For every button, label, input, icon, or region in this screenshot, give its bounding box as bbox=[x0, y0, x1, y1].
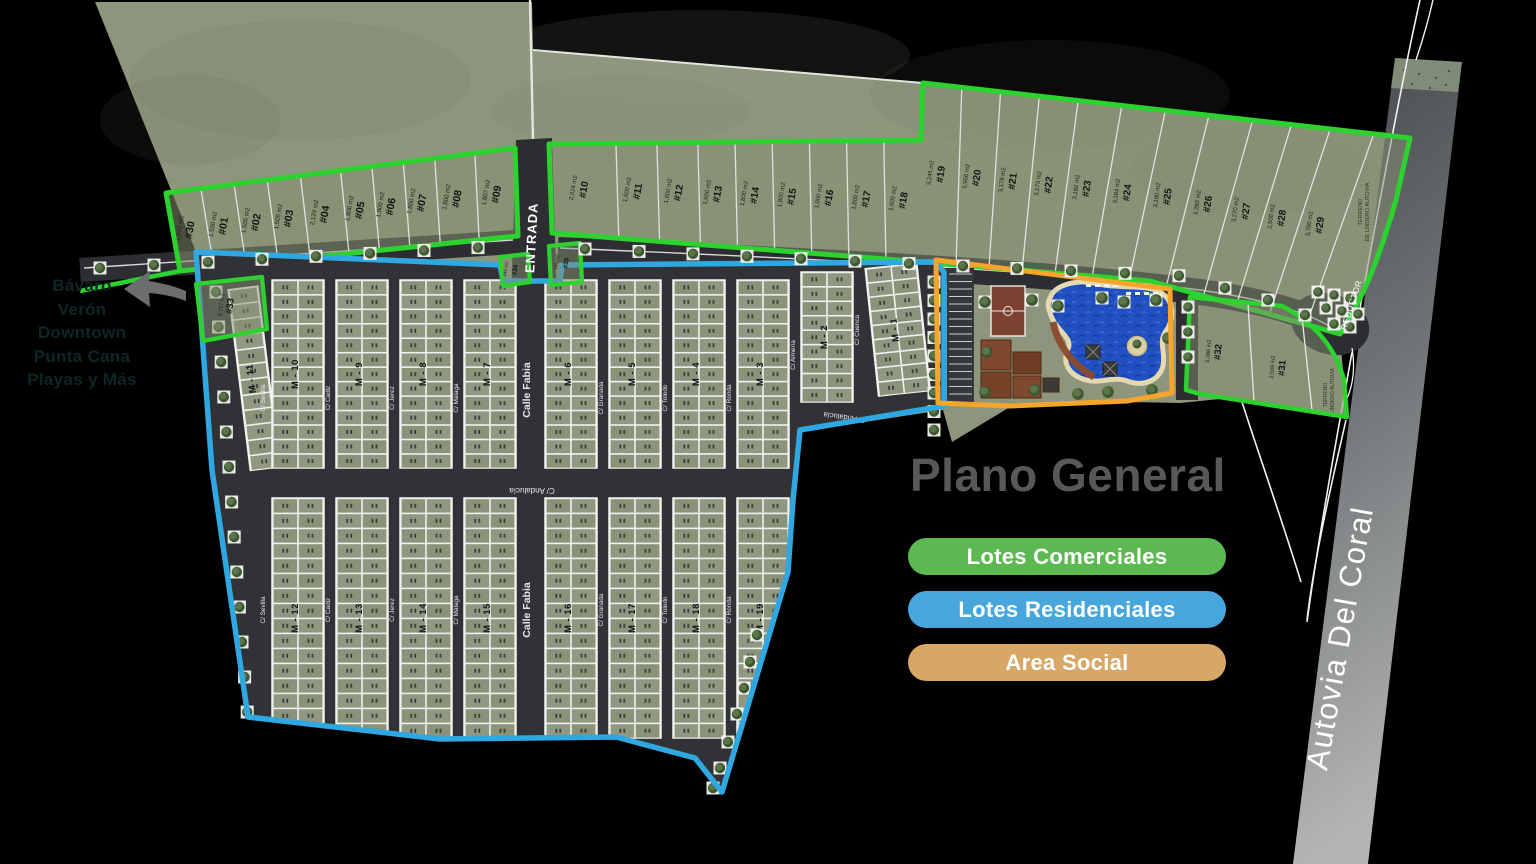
plano-general-page: Autovia Del Coral1,922 m2#301,500 m2#011… bbox=[0, 0, 1536, 864]
block-label: M - 6 bbox=[563, 362, 574, 386]
tree-icon bbox=[687, 247, 700, 260]
street-label: C/ Cadiz bbox=[325, 598, 332, 623]
tree-icon bbox=[94, 262, 107, 275]
tree-icon bbox=[714, 762, 727, 775]
tree-icon bbox=[364, 247, 377, 260]
tree-icon bbox=[849, 255, 862, 268]
tree-icon bbox=[256, 253, 269, 266]
street-label: C/ Sevilla bbox=[260, 384, 267, 411]
svg-text:DE LINDERO AUTOVIA: DE LINDERO AUTOVIA bbox=[1365, 182, 1371, 241]
tree-icon bbox=[1029, 384, 1041, 396]
tree-icon bbox=[738, 682, 751, 695]
tree-icon bbox=[1072, 388, 1084, 400]
svg-text:#32: #32 bbox=[1212, 344, 1224, 361]
tree-icon bbox=[981, 346, 993, 358]
block-M-7[interactable]: M - 7 bbox=[464, 280, 516, 468]
block-label: M - 8 bbox=[418, 362, 429, 386]
block-M-4[interactable]: M - 4 bbox=[673, 280, 725, 468]
tree-icon bbox=[1096, 292, 1109, 305]
tree-icon bbox=[1052, 300, 1065, 313]
block-M-19[interactable]: M - 19 bbox=[737, 498, 789, 738]
tree-icon bbox=[1011, 262, 1024, 275]
note-line: Playas y Más bbox=[14, 368, 150, 392]
lindero-note: TERRENO bbox=[1358, 198, 1364, 226]
tree-icon bbox=[979, 296, 992, 309]
tree-icon bbox=[744, 656, 757, 669]
street-label: C/ Ronda bbox=[726, 596, 733, 623]
street-label: C/ Granada bbox=[598, 593, 605, 626]
tree-icon bbox=[230, 566, 243, 579]
tree-icon bbox=[1102, 386, 1114, 398]
tree-icon bbox=[722, 736, 735, 749]
block-label: M - 18 bbox=[691, 603, 702, 633]
street-label: Calle Fabia bbox=[521, 582, 533, 638]
tree-icon bbox=[1262, 294, 1275, 307]
block-M-18[interactable]: M - 18 bbox=[673, 498, 725, 738]
note-line: Punta Cana bbox=[14, 345, 150, 369]
block-label: M - 17 bbox=[627, 603, 638, 633]
street-label: C/ Cuenca bbox=[854, 314, 861, 345]
legend-lotes-residenciales[interactable]: Lotes Residenciales bbox=[908, 591, 1226, 628]
legend-lotes-comerciales[interactable]: Lotes Comerciales bbox=[908, 538, 1226, 575]
legend: Lotes Comerciales Lotes Residenciales Ar… bbox=[908, 538, 1226, 697]
block-M-13[interactable]: M - 13 bbox=[336, 498, 388, 738]
tree-icon bbox=[1320, 302, 1333, 315]
block-label: M - 19 bbox=[755, 603, 766, 633]
street-label: C/ Málaga bbox=[453, 383, 460, 413]
block-label: M - 14 bbox=[418, 603, 429, 633]
tree-icon bbox=[310, 250, 323, 263]
tree-icon bbox=[418, 244, 431, 257]
tree-icon bbox=[202, 256, 215, 269]
street-label: C/ Jerez bbox=[389, 598, 396, 622]
street-label: Calle Fabia bbox=[521, 362, 533, 418]
tree-icon bbox=[957, 260, 970, 273]
street-label: C/ Granada bbox=[598, 381, 605, 414]
tree-icon bbox=[579, 243, 592, 256]
tree-icon bbox=[633, 245, 646, 258]
tree-icon bbox=[225, 496, 238, 509]
block-M-9[interactable]: M - 9 bbox=[336, 280, 388, 468]
street-label: C/ Cadiz bbox=[325, 386, 332, 411]
block-label: M - 13 bbox=[354, 603, 365, 633]
block-label: M - 16 bbox=[563, 603, 574, 633]
residential-area: M - 11M - 10M - 9M - 8M - 7M - 6M - 5M -… bbox=[196, 252, 944, 795]
tree-icon bbox=[979, 386, 991, 398]
block-M-6[interactable]: M - 6 bbox=[545, 280, 597, 468]
street-label-andalucia: C/ Andalucía bbox=[509, 486, 555, 495]
tree-icon bbox=[741, 250, 754, 263]
street-label: C/ Toledo bbox=[662, 596, 669, 623]
block-M-5[interactable]: M - 5 bbox=[609, 280, 661, 468]
svg-text:#33: #33 bbox=[224, 298, 237, 315]
tree-icon bbox=[903, 257, 916, 270]
plan-title: Plano General bbox=[910, 448, 1226, 502]
block-label: M - 12 bbox=[290, 603, 301, 633]
block-M-10[interactable]: M - 10 bbox=[272, 280, 324, 468]
block-label: M - 9 bbox=[354, 362, 365, 386]
tree-icon bbox=[472, 241, 485, 254]
block-label: M - 15 bbox=[482, 603, 493, 633]
svg-text:#35: #35 bbox=[562, 257, 570, 269]
svg-text:#34: #34 bbox=[511, 264, 519, 276]
block-M-17[interactable]: M - 17 bbox=[609, 498, 661, 738]
street-label: C/ Málaga bbox=[453, 595, 460, 625]
tree-icon bbox=[795, 252, 808, 265]
tree-icon bbox=[228, 531, 241, 544]
tree-icon bbox=[217, 391, 230, 404]
left-arrow-icon bbox=[122, 268, 188, 317]
legend-area-social[interactable]: Area Social bbox=[908, 644, 1226, 681]
block-label: M - 10 bbox=[290, 359, 301, 389]
block-M-2[interactable]: M - 2 bbox=[801, 272, 853, 402]
block-M-12[interactable]: M - 12 bbox=[272, 498, 324, 738]
street-label: C/ Ronda bbox=[726, 384, 733, 411]
tree-icon bbox=[1118, 296, 1131, 309]
svg-text:#31: #31 bbox=[1276, 359, 1288, 376]
tree-icon bbox=[1219, 282, 1232, 295]
block-label: M - 7 bbox=[482, 362, 493, 386]
tree-icon bbox=[1173, 269, 1186, 282]
tree-icon bbox=[1065, 264, 1078, 277]
street-label: C/ Sevilla bbox=[260, 596, 267, 623]
block-label: M - 4 bbox=[691, 362, 702, 386]
note-line: Downtown bbox=[14, 321, 150, 345]
street-label: C/ Jerez bbox=[389, 386, 396, 410]
tree-icon bbox=[928, 424, 941, 437]
tree-icon bbox=[1182, 326, 1195, 339]
block-label: M - 3 bbox=[755, 362, 766, 386]
tree-icon bbox=[1133, 340, 1142, 349]
tree-icon bbox=[1119, 267, 1132, 280]
tree-icon bbox=[1182, 301, 1195, 314]
tree-icon bbox=[1299, 309, 1312, 322]
tree-icon bbox=[215, 356, 228, 369]
tree-icon bbox=[1312, 286, 1325, 299]
block-M-14[interactable]: M - 14 bbox=[400, 498, 452, 738]
tree-icon bbox=[1182, 351, 1195, 364]
tree-icon bbox=[1150, 294, 1163, 307]
block-M-15[interactable]: M - 15 bbox=[464, 498, 516, 738]
tree-icon bbox=[1026, 294, 1039, 307]
street-label: C/ Almería bbox=[790, 340, 797, 370]
tree-icon bbox=[1328, 289, 1341, 302]
block-label: M - 2 bbox=[819, 325, 830, 349]
block-M-8[interactable]: M - 8 bbox=[400, 280, 452, 468]
block-label: M - 5 bbox=[627, 362, 638, 386]
tree-icon bbox=[751, 629, 764, 642]
block-M-3[interactable]: M - 3 bbox=[737, 280, 789, 468]
street-label: C/ Toledo bbox=[662, 384, 669, 411]
tree-icon bbox=[220, 426, 233, 439]
site-plan-map: Autovia Del Coral1,922 m2#301,500 m2#011… bbox=[0, 0, 1536, 864]
block-M-16[interactable]: M - 16 bbox=[545, 498, 597, 738]
tree-icon bbox=[223, 461, 236, 474]
svg-text:TERRENO: TERRENO bbox=[1323, 383, 1329, 408]
